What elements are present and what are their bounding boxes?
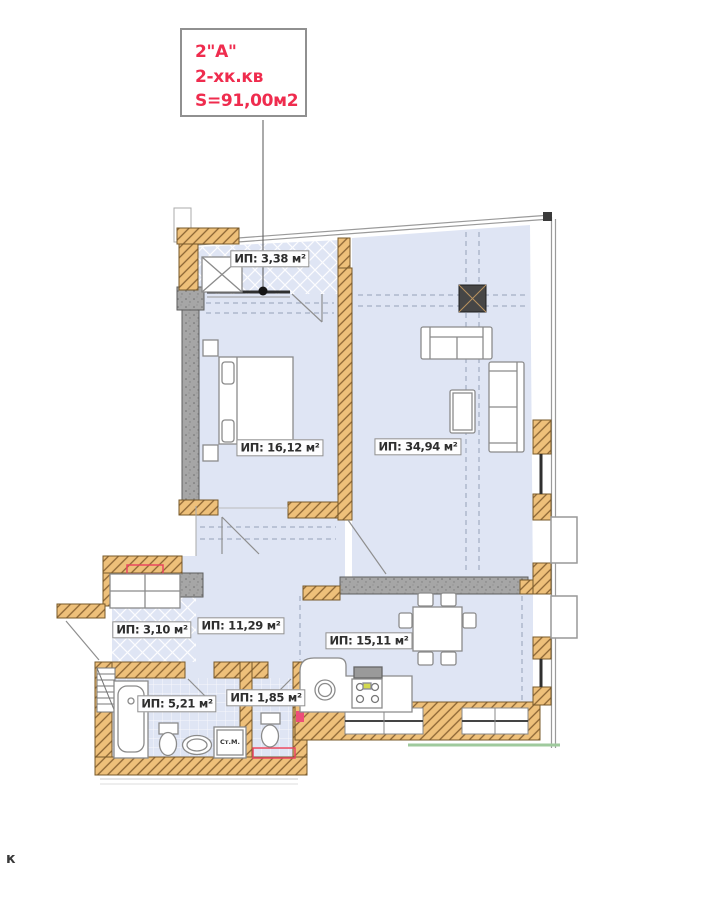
room-label-bedroom: ИП: 16,12 м²: [236, 439, 323, 456]
floor-plan-page: 2"A" 2-хк.кв S=91,00м2 ИП: 3,38 м² ИП: 1…: [0, 0, 704, 900]
apartment-type: 2"A": [195, 40, 305, 65]
apartment-info-box: 2"A" 2-хк.кв S=91,00м2: [180, 28, 307, 117]
entry-closet-icon: [110, 574, 180, 608]
room-label-living-room: ИП: 34,94 м²: [374, 438, 461, 455]
room-label-wc: ИП: 1,85 м²: [226, 689, 305, 706]
room-label-bathroom: ИП: 5,21 м²: [137, 695, 216, 712]
bathroom-sink-icon: [183, 736, 212, 755]
facade-corner-marker: [543, 212, 552, 221]
toilet-icon: [159, 723, 178, 756]
wc-toilet-icon: [261, 713, 280, 747]
room-label-balcony: ИП: 3,38 м²: [230, 250, 309, 267]
apartment-rooms: 2-хк.кв: [195, 65, 305, 90]
floor-plan-canvas: [0, 0, 704, 900]
washing-machine-label: Ст.М.: [220, 738, 240, 746]
apartment-area: S=91,00м2: [195, 89, 305, 114]
corner-cutoff-text: к: [6, 851, 16, 867]
vent-shaft: [97, 668, 115, 712]
room-label-kitchen: ИП: 15,11 м²: [325, 632, 412, 649]
coffee-table-icon: [450, 390, 475, 433]
room-label-hall: ИП: 11,29 м²: [197, 617, 284, 634]
room-label-entry-hall: ИП: 3,10 м²: [112, 621, 191, 638]
living-room-column: [459, 285, 486, 312]
bathtub-icon: [114, 681, 148, 758]
